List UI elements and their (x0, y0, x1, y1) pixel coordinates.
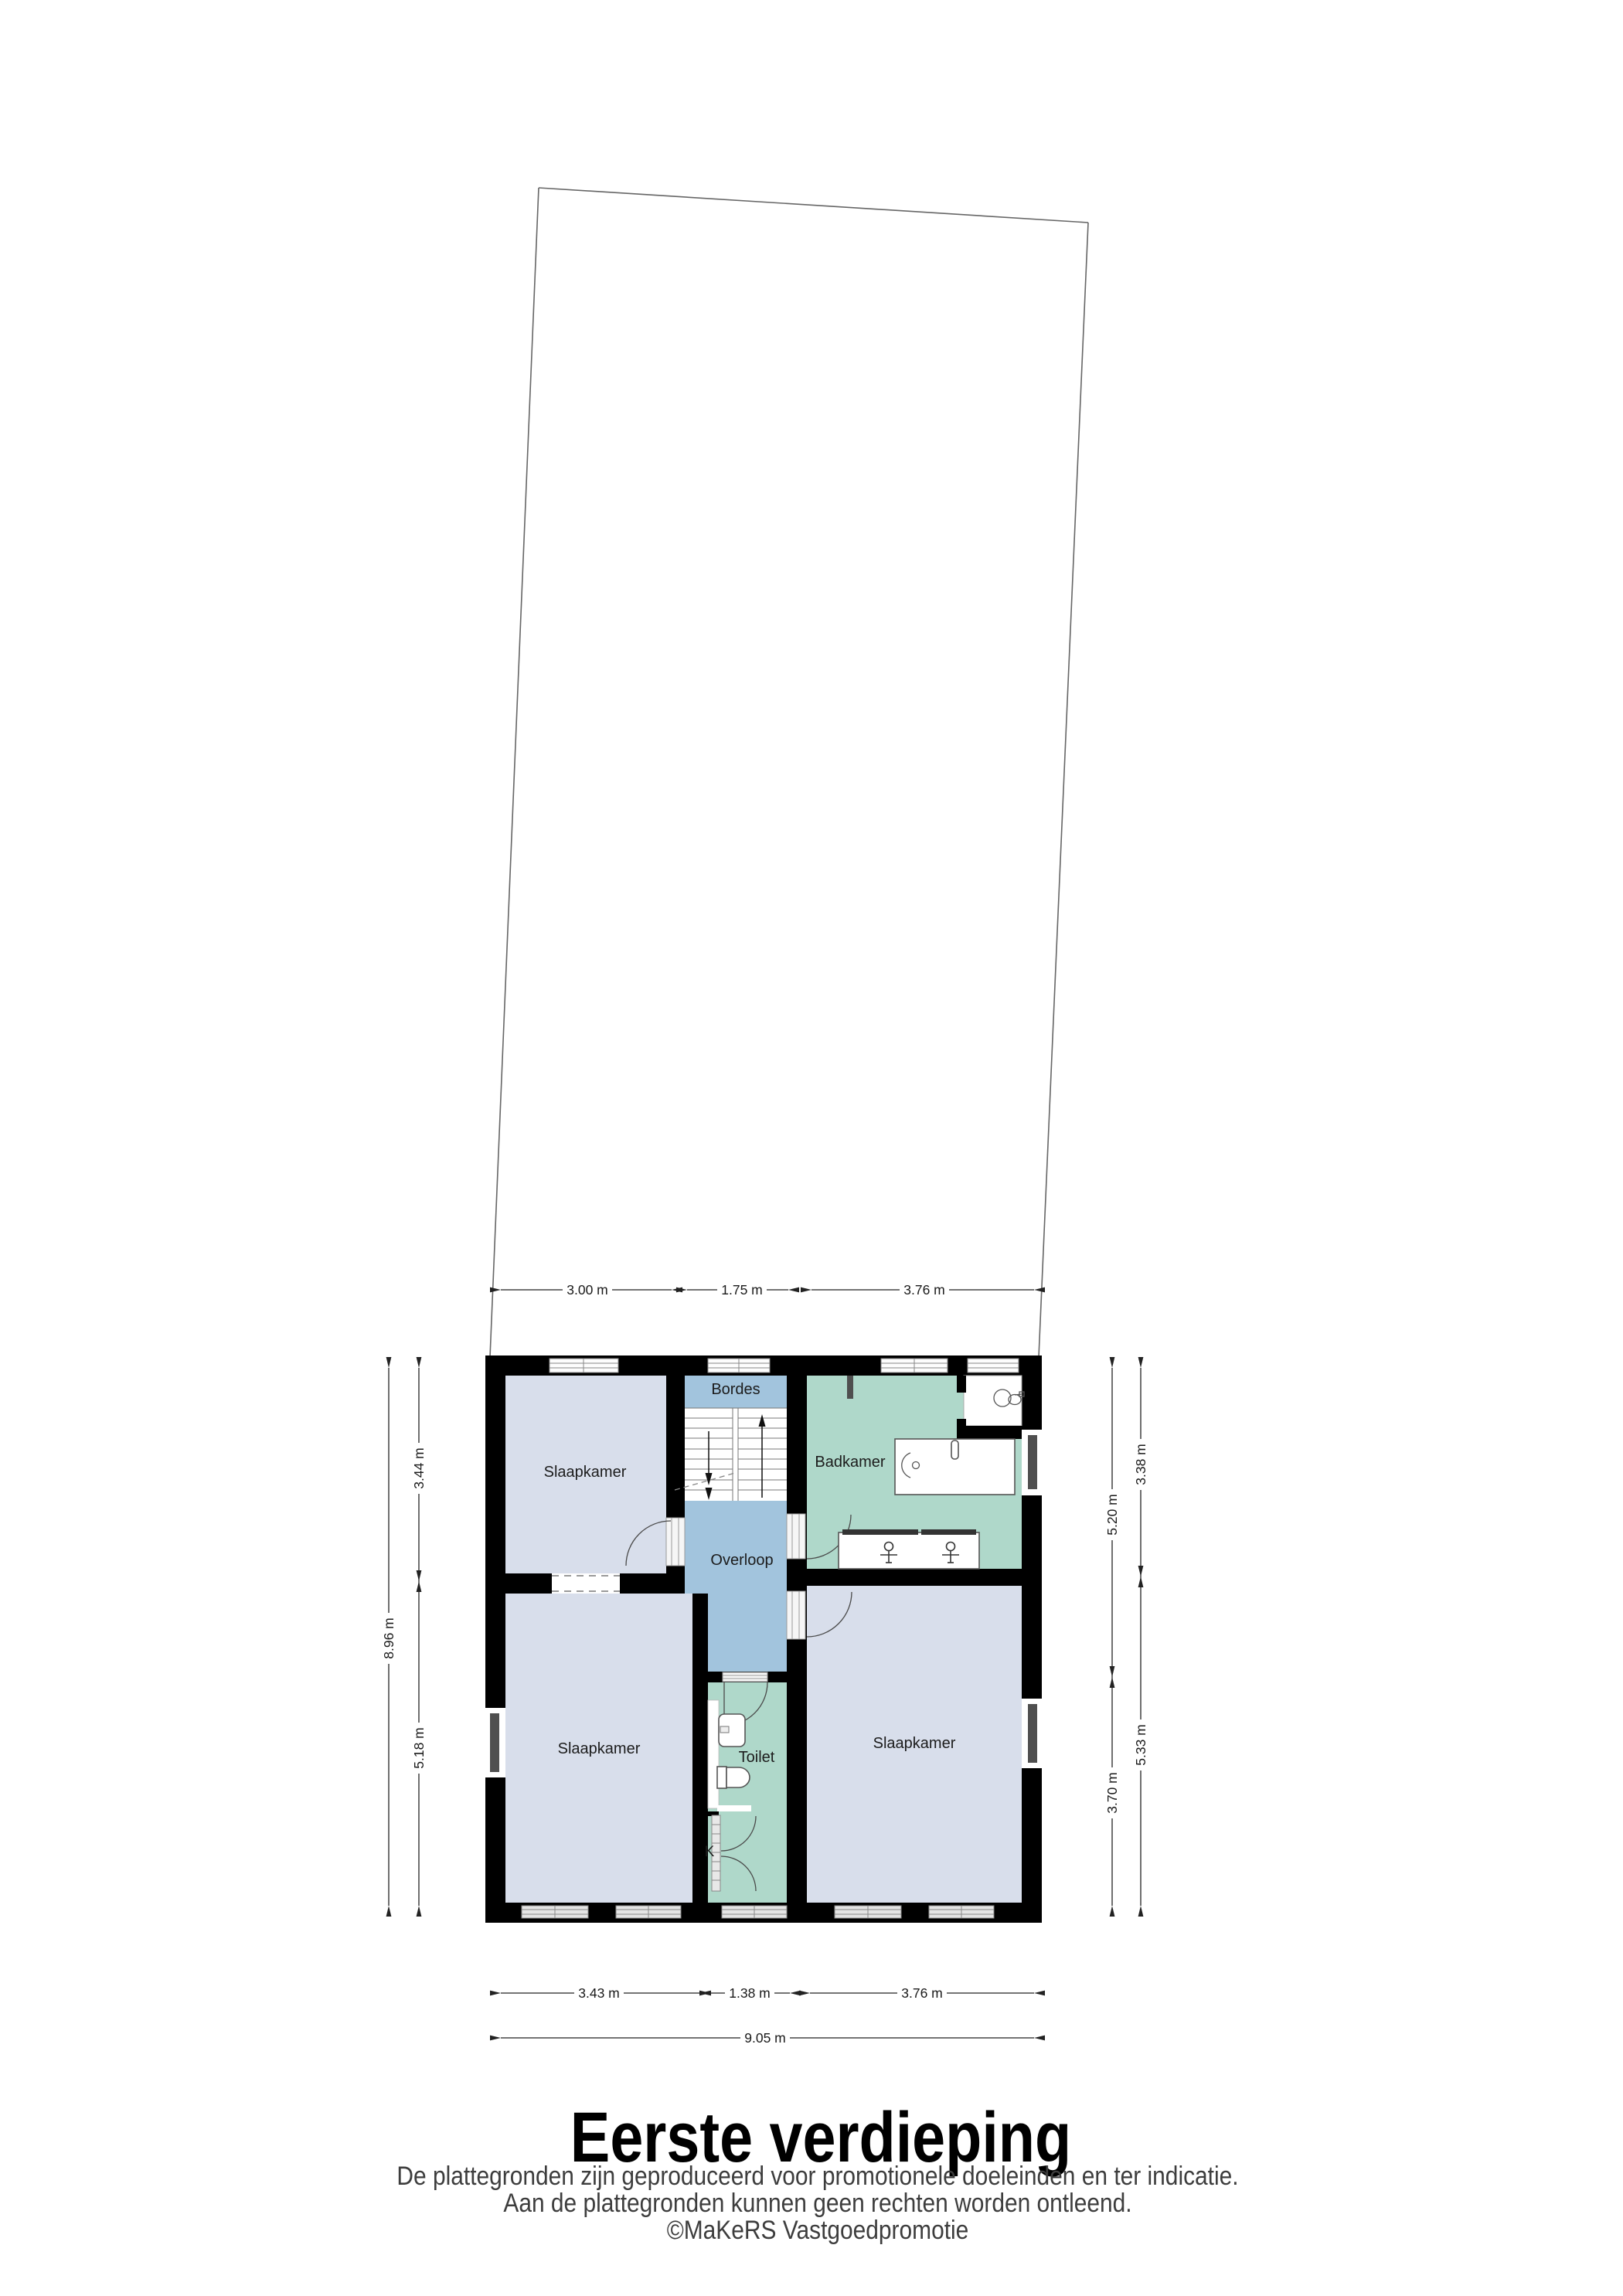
alcove-floor (964, 1376, 1022, 1426)
dim-right-outer-bottom: 5.33 m (1133, 1724, 1148, 1766)
window (550, 1359, 618, 1372)
alcove-stub-wall (957, 1376, 966, 1393)
alcove-bottom-wall (960, 1426, 1025, 1439)
dim-left-inner-top: 3.44 m (411, 1447, 427, 1489)
disclaimer-line-2: Aan de plattegronden kunnen geen rechten… (503, 2188, 1131, 2217)
dim-top-2: 1.75 m (721, 1282, 763, 1298)
dim-bottom: 3.43 m 1.38 m 3.76 m 9.05 m (501, 1985, 1034, 2046)
window (522, 1906, 588, 1918)
window (722, 1906, 787, 1918)
label-overloop: Overloop (710, 1552, 773, 1569)
wc-cistern (717, 1767, 726, 1788)
wc-bowl (726, 1767, 750, 1787)
bathtub-faucet (951, 1441, 958, 1459)
window (881, 1359, 948, 1372)
disclaimer: De plattegronden zijn geproduceerd voor … (396, 2161, 1238, 2244)
dim-left-outer: 8.96 m (381, 1617, 396, 1659)
label-toilet: Toilet (739, 1749, 775, 1766)
window-dark (490, 1713, 499, 1772)
dim-top: 3.00 m 1.75 m 3.76 m (501, 1282, 1034, 1298)
vanity-edge (921, 1529, 976, 1535)
label-bedroom-bottomleft: Slaapkamer (558, 1740, 641, 1757)
dim-right-outer-top: 3.38 m (1133, 1444, 1148, 1485)
bathroom-alcove (957, 1376, 1025, 1439)
window-dark (1028, 1704, 1037, 1763)
dim-right-inner-top: 5.20 m (1104, 1494, 1120, 1536)
window (835, 1906, 901, 1918)
window (616, 1906, 681, 1918)
plot-edge-right (1039, 223, 1088, 1357)
window-dark (1028, 1435, 1037, 1489)
toilet-basin-tap (720, 1726, 729, 1733)
plot-edge-top (539, 188, 1088, 223)
dim-bottom-1: 3.43 m (578, 1985, 620, 2001)
dim-top-3: 3.76 m (903, 1282, 945, 1298)
window (968, 1359, 1019, 1372)
dim-bottom-3: 3.76 m (901, 1985, 943, 2001)
toilet-wall-strip (708, 1700, 719, 1808)
plot-edge-left (490, 188, 539, 1357)
window (929, 1906, 994, 1918)
dim-right-inner-bottom: 3.70 m (1104, 1772, 1120, 1814)
plot-boundary (490, 188, 1088, 1357)
label-badkamer: Badkamer (815, 1454, 885, 1471)
vanity-edge (842, 1529, 918, 1535)
floor-plan: Slaapkamer Bordes Badkamer Overloop Slaa… (485, 1355, 1042, 1923)
vanity (839, 1532, 979, 1569)
dim-right: 5.20 m 3.70 m 3.38 m 5.33 m (1104, 1368, 1148, 1906)
dim-top-1: 3.00 m (567, 1282, 608, 1298)
disclaimer-line-1: De plattegronden zijn geproduceerd voor … (396, 2161, 1238, 2190)
stairwell (685, 1408, 787, 1501)
floorplan-canvas: Slaapkamer Bordes Badkamer Overloop Slaa… (0, 0, 1623, 2296)
dim-bottom-overall: 9.05 m (744, 2030, 786, 2046)
dim-left-inner-bottom: 5.18 m (411, 1727, 427, 1769)
label-closet: K (705, 1844, 715, 1860)
toilet-shelf (717, 1805, 751, 1811)
dim-left: 8.96 m 3.44 m 5.18 m (381, 1368, 427, 1906)
window (708, 1359, 770, 1372)
bathroom-duct (847, 1376, 853, 1399)
label-bedroom-topleft: Slaapkamer (544, 1464, 627, 1481)
opening-bedrooms-left (552, 1573, 620, 1594)
dim-bottom-2: 1.38 m (729, 1985, 771, 2001)
disclaimer-line-3: ©MaKeRS Vastgoedpromotie (667, 2215, 969, 2244)
label-bedroom-bottomright: Slaapkamer (873, 1735, 956, 1752)
label-bordes: Bordes (711, 1381, 760, 1398)
